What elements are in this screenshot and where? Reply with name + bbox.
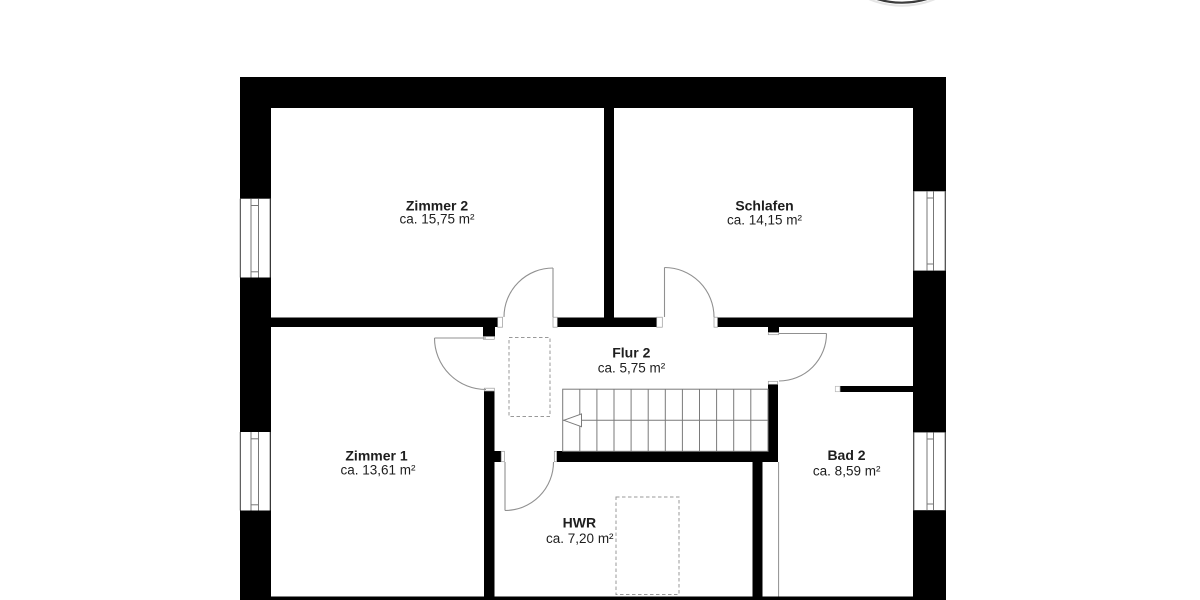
svg-text:ca. 14,15 m²: ca. 14,15 m²: [727, 213, 803, 228]
svg-text:ca. 15,75 m²: ca. 15,75 m²: [399, 212, 475, 227]
svg-text:Flur 2: Flur 2: [612, 345, 650, 361]
svg-text:Schlafen: Schlafen: [735, 198, 793, 214]
svg-text:Zimmer 1: Zimmer 1: [345, 447, 407, 463]
svg-text:Bad 2: Bad 2: [827, 447, 865, 463]
svg-text:ca. 13,61 m²: ca. 13,61 m²: [340, 463, 416, 478]
svg-text:ca. 5,75 m²: ca. 5,75 m²: [598, 361, 666, 376]
svg-text:HWR: HWR: [563, 514, 596, 530]
svg-text:ca. 8,59 m²: ca. 8,59 m²: [813, 463, 881, 478]
svg-text:ca. 7,20 m²: ca. 7,20 m²: [546, 531, 614, 546]
